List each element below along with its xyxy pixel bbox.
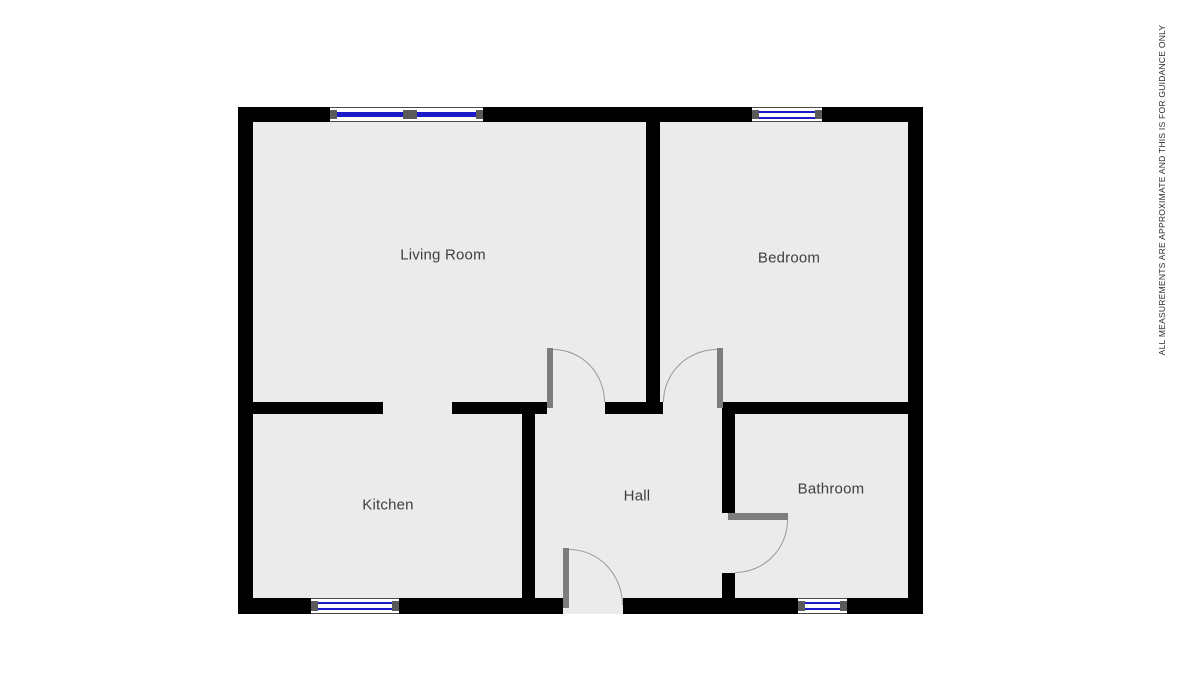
window-end-cap: [798, 601, 805, 611]
window-bedroom: [752, 107, 822, 122]
wall-exterior-bottom-b: [399, 598, 563, 614]
door-swing-arc-bedroom: [663, 349, 717, 402]
window-end-cap: [410, 110, 417, 119]
wall-exterior-top-c: [822, 107, 923, 122]
floorplan-page: { "disclaimer": { "text": "ALL MEASUREME…: [0, 0, 1200, 675]
window-end-cap: [311, 601, 318, 611]
window-glass: [318, 602, 392, 610]
wall-exterior-top-a: [238, 107, 330, 122]
wall-exterior-top-b: [483, 107, 752, 122]
window-end-cap: [752, 110, 759, 119]
floorplan-diagram: Living Room Bedroom Kitchen Hall Bathroo…: [238, 107, 923, 614]
window-bathroom: [798, 598, 847, 614]
door-swing-arc-living-room: [553, 349, 605, 402]
window-glass: [417, 112, 476, 117]
window-end-cap: [840, 601, 847, 611]
wall-exterior-bottom-a: [238, 598, 311, 614]
window-glass: [337, 112, 403, 117]
wall-exterior-left: [238, 107, 253, 614]
wall-interior-living-bedroom-divider: [646, 122, 660, 402]
window-living-room-2: [410, 107, 483, 122]
wall-interior-hall-bathroom-upper: [722, 414, 735, 513]
door-swing-arc-bathroom: [735, 520, 788, 573]
wall-interior-hall-top: [605, 402, 663, 414]
room-label-hall: Hall: [624, 488, 651, 505]
wall-exterior-bottom-d: [847, 598, 923, 614]
window-kitchen: [311, 598, 399, 614]
window-end-cap: [403, 110, 410, 119]
window-end-cap: [330, 110, 337, 119]
window-end-cap: [815, 110, 822, 119]
wall-exterior-right: [908, 107, 923, 614]
window-end-cap: [392, 601, 399, 611]
room-label-kitchen: Kitchen: [362, 497, 413, 514]
window-glass: [805, 602, 840, 610]
disclaimer-text: ALL MEASUREMENTS ARE APPROXIMATE AND THI…: [1157, 25, 1167, 356]
door-swing-arc-front-entrance: [569, 549, 623, 605]
wall-interior-hall-bathroom-lower: [722, 573, 735, 598]
wall-interior-bathroom-top: [722, 402, 908, 414]
wall-exterior-bottom-c: [623, 598, 798, 614]
door-leaf-bedroom: [717, 348, 723, 408]
window-end-cap: [476, 110, 483, 119]
room-label-bedroom: Bedroom: [758, 250, 820, 267]
door-leaf-bathroom: [728, 513, 788, 520]
window-living-room-1: [330, 107, 410, 122]
wall-interior-kitchen-top-a: [253, 402, 383, 414]
wall-interior-kitchen-hall: [522, 414, 535, 598]
wall-interior-kitchen-top-b: [452, 402, 547, 414]
room-label-bathroom: Bathroom: [798, 481, 865, 498]
window-glass: [759, 111, 815, 119]
room-label-living-room: Living Room: [400, 247, 486, 264]
